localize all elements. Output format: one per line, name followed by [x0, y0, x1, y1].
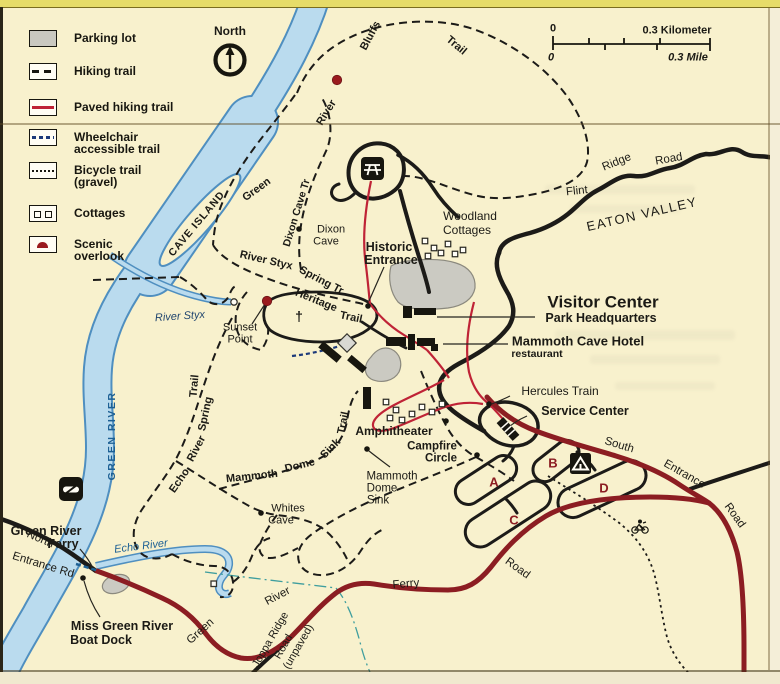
- paper-right-band: [770, 8, 780, 670]
- scale-bar: [553, 36, 710, 51]
- parking-swatch: [29, 30, 57, 47]
- south-entrance-road: [487, 397, 744, 684]
- cottage-square: [383, 399, 389, 405]
- hotel-building: [386, 337, 406, 346]
- legend-item-bicycle-trail: Bicycle trail(gravel): [29, 162, 141, 188]
- cottage-square: [387, 415, 393, 421]
- green-river-bluffs-trail: [297, 22, 588, 199]
- campground-loop-c: [460, 475, 557, 552]
- campground-loop-a: [450, 451, 521, 510]
- poi-dot-historic-entrance: [365, 303, 371, 309]
- cottage-square: [425, 253, 431, 259]
- buildings: [318, 306, 519, 441]
- cottage-square: [431, 245, 437, 251]
- flint-ridge-road: [499, 149, 780, 253]
- cottage-square: [438, 250, 444, 256]
- poi-dot-campfire-circle: [474, 452, 480, 458]
- cottage-square: [422, 238, 428, 244]
- legend-label: Hiking trail: [74, 65, 136, 77]
- campground-icon: [570, 453, 591, 474]
- paved-trail-swatch: [29, 99, 57, 116]
- legend-item-cottages: Cottages: [29, 205, 125, 222]
- wheelchair-trail-swatch: [29, 129, 57, 146]
- compass-rose: [216, 46, 245, 75]
- paper-top-band: [0, 0, 780, 8]
- picnic-area-icon: [361, 157, 384, 180]
- intermittent-stream: [205, 572, 376, 684]
- park-hq-building: [403, 306, 412, 318]
- pointer-lines: [80, 267, 535, 617]
- legend: Parking lot Hiking trail Paved hiking tr…: [29, 30, 209, 260]
- cottage-square: [393, 407, 399, 413]
- horizontal-fold-crease: [0, 123, 780, 125]
- legend-label-2: overlook: [74, 250, 124, 262]
- cottage-square: [445, 241, 451, 247]
- paved-roads: [97, 397, 744, 684]
- amphitheater-building: [363, 387, 371, 409]
- green-river-ferry-road: [97, 497, 709, 659]
- cottage-square: [399, 417, 405, 423]
- scenic-overlook-dot-sunset-point-overlook: [262, 296, 272, 306]
- legend-item-scenic-overlook: Scenicoverlook: [29, 236, 124, 262]
- bicycle-icon: [632, 520, 648, 533]
- hiking-trail-swatch: [29, 63, 57, 80]
- poi-dot-mammoth-dome-sink: [364, 446, 370, 452]
- bicycle-trail-swatch: [29, 162, 57, 179]
- cottage-square: [429, 409, 435, 415]
- river-styx-spring: [231, 299, 237, 305]
- paper-bottom-edge: [0, 670, 780, 672]
- ferry-icon: [59, 477, 83, 501]
- legend-label-2: accessible trail: [74, 143, 160, 155]
- heritage-trail-loop: [264, 292, 377, 342]
- legend-item-paved-trail: Paved hiking trail: [29, 99, 173, 116]
- poi-dot-whites-cave: [258, 510, 264, 516]
- cottage-square: [460, 247, 466, 253]
- poi-dot-boat-dock: [80, 575, 86, 581]
- legend-item-parking: Parking lot: [29, 30, 136, 47]
- legend-label: Cottages: [74, 207, 125, 219]
- cottages-swatch: [29, 205, 57, 222]
- mammoth-dome-sink-trail: [219, 391, 358, 489]
- parking-lot-hotel: [365, 348, 400, 381]
- parking-lot-historic: [390, 259, 475, 309]
- scenic-overlook-swatch: [29, 236, 57, 253]
- cottage-square: [409, 411, 415, 417]
- cottage-square: [452, 251, 458, 257]
- cottage-square: [439, 401, 445, 407]
- poi-dot-hercules-train: [486, 401, 492, 407]
- park-map: Parking lot Hiking trail Paved hiking tr…: [0, 0, 780, 684]
- legend-label-2: (gravel): [74, 176, 141, 188]
- poi-dot-dixon-cave: [296, 226, 302, 232]
- echo-river-spring: [211, 581, 217, 587]
- cottage-square: [419, 404, 425, 410]
- scenic-overlook-dot-bluffs-overlook: [332, 75, 342, 85]
- legend-label: Paved hiking trail: [74, 101, 173, 113]
- paper-left-edge: [0, 7, 3, 672]
- legend-item-wheelchair-trail: Wheelchairaccessible trail: [29, 129, 160, 155]
- legend-label: Parking lot: [74, 32, 136, 44]
- vertical-fold-crease: [768, 8, 770, 670]
- poi-dot-amphitheater: [443, 418, 449, 424]
- river-styx-spring-trail: [213, 245, 367, 305]
- legend-item-hiking-trail: Hiking trail: [29, 63, 136, 80]
- echo-river-spring-trail: [134, 318, 232, 559]
- paper-bottom-band: [0, 672, 780, 684]
